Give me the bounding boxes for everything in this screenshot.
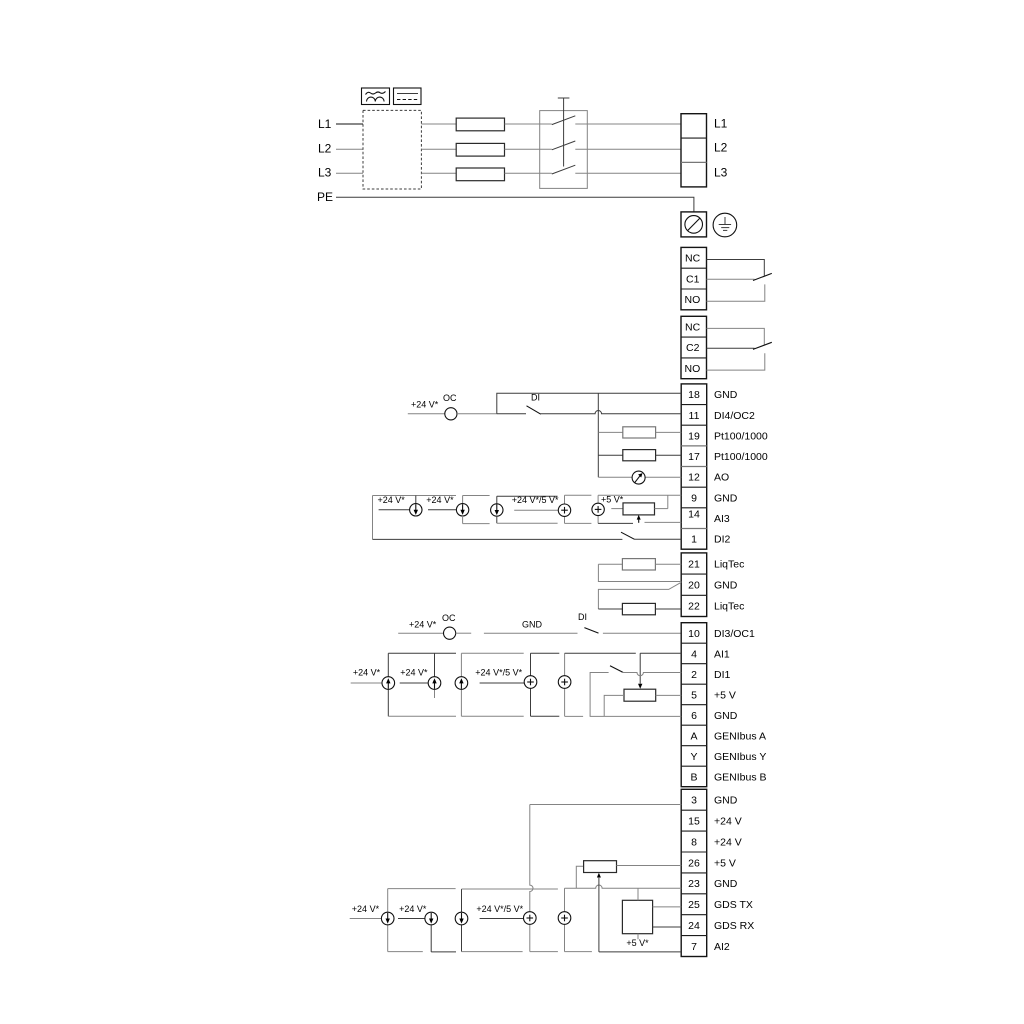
svg-text:GND: GND <box>714 795 738 807</box>
svg-text:+24 V*: +24 V* <box>378 495 406 505</box>
svg-text:+24 V*: +24 V* <box>411 399 439 409</box>
svg-text:+24 V*/5 V*: +24 V*/5 V* <box>512 495 559 505</box>
svg-text:+24 V: +24 V <box>714 816 742 828</box>
svg-text:Pt100/1000: Pt100/1000 <box>714 451 768 463</box>
svg-text:C2: C2 <box>686 342 700 354</box>
svg-text:1: 1 <box>691 534 697 546</box>
svg-text:+5 V*: +5 V* <box>626 938 649 948</box>
svg-text:+24 V: +24 V <box>714 836 742 848</box>
svg-text:DI1: DI1 <box>714 669 731 681</box>
svg-text:GND: GND <box>714 580 738 592</box>
svg-text:GENIbus Y: GENIbus Y <box>714 751 766 763</box>
svg-text:10: 10 <box>688 628 700 640</box>
svg-text:22: 22 <box>688 601 700 613</box>
svg-text:GENIbus A: GENIbus A <box>714 730 766 742</box>
svg-text:GND: GND <box>714 389 738 401</box>
svg-text:GDS TX: GDS TX <box>714 899 753 911</box>
svg-text:+24 V*/5 V*: +24 V*/5 V* <box>476 904 523 914</box>
svg-text:+24 V*/5 V*: +24 V*/5 V* <box>475 667 522 677</box>
svg-text:GND: GND <box>714 492 738 504</box>
svg-text:DI: DI <box>531 393 540 403</box>
svg-text:L1: L1 <box>318 117 332 131</box>
svg-text:LiqTec: LiqTec <box>714 558 744 570</box>
svg-text:GDS RX: GDS RX <box>714 920 754 932</box>
svg-text:AI3: AI3 <box>714 513 730 525</box>
svg-text:B: B <box>690 771 697 783</box>
svg-text:15: 15 <box>688 816 700 828</box>
svg-text:25: 25 <box>688 899 700 911</box>
svg-text:+5 V*: +5 V* <box>601 495 624 505</box>
svg-text:A: A <box>690 730 697 742</box>
svg-text:17: 17 <box>688 451 700 463</box>
svg-text:3: 3 <box>691 795 697 807</box>
svg-text:DI2: DI2 <box>714 534 731 546</box>
svg-text:GND: GND <box>522 620 543 630</box>
svg-text:21: 21 <box>688 558 700 570</box>
svg-text:L2: L2 <box>318 142 332 156</box>
svg-text:L1: L1 <box>714 117 728 131</box>
svg-text:+24 V*: +24 V* <box>353 667 381 677</box>
svg-text:OC: OC <box>442 613 456 623</box>
svg-text:DI: DI <box>578 612 587 622</box>
svg-text:GND: GND <box>714 710 738 722</box>
svg-text:DI3/OC1: DI3/OC1 <box>714 628 755 640</box>
svg-text:PE: PE <box>317 190 333 204</box>
svg-text:5: 5 <box>691 689 697 701</box>
svg-text:6: 6 <box>691 710 697 722</box>
svg-text:4: 4 <box>691 648 697 660</box>
svg-text:L3: L3 <box>714 166 728 180</box>
svg-text:23: 23 <box>688 878 700 890</box>
svg-text:+24 V*: +24 V* <box>426 495 454 505</box>
svg-text:NO: NO <box>685 363 701 375</box>
svg-text:GND: GND <box>714 878 738 890</box>
svg-text:11: 11 <box>689 410 700 422</box>
svg-text:C1: C1 <box>686 273 700 285</box>
svg-text:Pt100/1000: Pt100/1000 <box>714 430 768 442</box>
svg-text:NC: NC <box>685 253 701 265</box>
svg-text:9: 9 <box>691 492 697 504</box>
svg-text:2: 2 <box>691 669 697 681</box>
svg-text:+5 V: +5 V <box>714 689 736 701</box>
svg-text:AI2: AI2 <box>714 941 730 953</box>
svg-text:26: 26 <box>688 857 700 869</box>
svg-text:19: 19 <box>688 430 700 442</box>
svg-text:12: 12 <box>688 472 700 484</box>
svg-text:NC: NC <box>685 321 701 333</box>
svg-text:8: 8 <box>691 836 697 848</box>
svg-text:AI1: AI1 <box>714 648 730 660</box>
svg-text:NO: NO <box>685 294 701 306</box>
svg-text:24: 24 <box>688 920 700 932</box>
svg-text:18: 18 <box>688 389 700 401</box>
svg-text:+5 V: +5 V <box>714 857 736 869</box>
svg-text:+24 V*: +24 V* <box>400 667 428 677</box>
svg-text:GENIbus B: GENIbus B <box>714 771 767 783</box>
svg-text:+24 V*: +24 V* <box>399 904 427 914</box>
svg-text:AO: AO <box>714 472 729 484</box>
svg-text:20: 20 <box>688 580 700 592</box>
svg-text:L3: L3 <box>318 166 332 180</box>
svg-text:LiqTec: LiqTec <box>714 601 744 613</box>
svg-text:OC: OC <box>443 393 457 403</box>
svg-text:Y: Y <box>690 751 697 763</box>
svg-text:7: 7 <box>691 941 697 953</box>
svg-text:14: 14 <box>688 509 700 521</box>
svg-text:L2: L2 <box>714 141 728 155</box>
svg-text:+24 V*: +24 V* <box>352 904 380 914</box>
svg-text:+24 V*: +24 V* <box>409 620 437 630</box>
svg-text:DI4/OC2: DI4/OC2 <box>714 410 755 422</box>
